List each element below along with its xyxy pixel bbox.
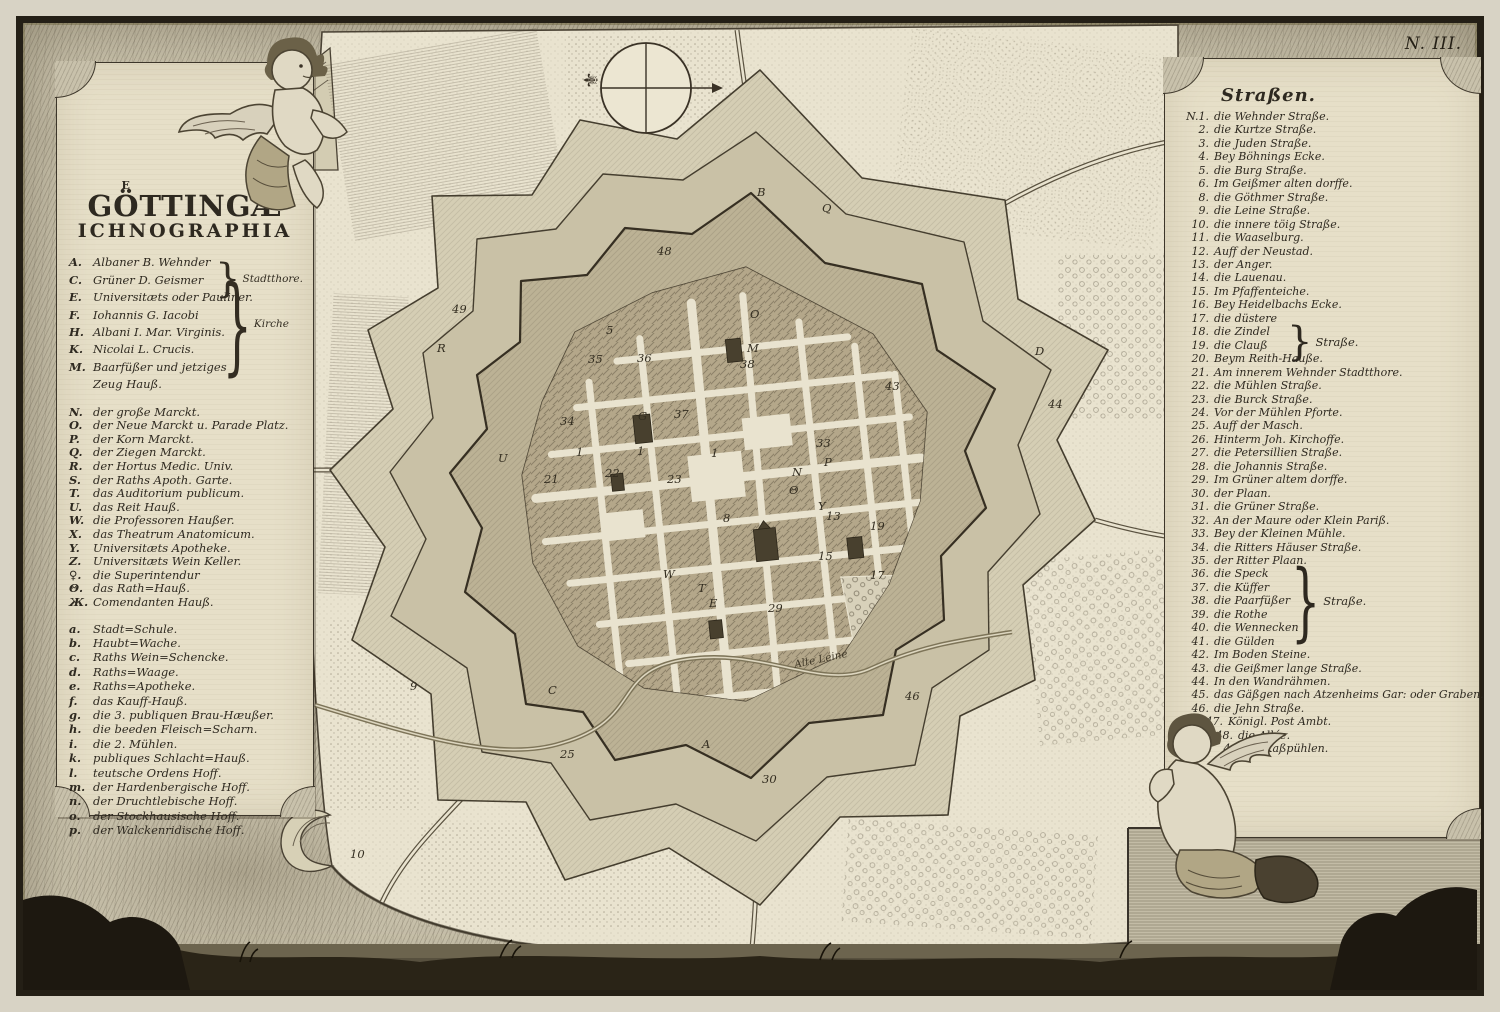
street-row: 8. die Göthmer Straße. xyxy=(1179,191,1479,204)
street-row: 4. Bey Böhnings Ecke. xyxy=(1179,150,1479,163)
street-row: 34. die Ritters Häuser Straße. xyxy=(1179,541,1479,554)
marble-ledge xyxy=(1128,828,1480,944)
street-row: 15. Im Pfaffenteiche. xyxy=(1179,285,1479,298)
street-row: 28. die Johannis Straße. xyxy=(1179,460,1479,473)
street-row: 47. Königl. Post Ambt. xyxy=(1179,715,1479,728)
legend-row: k. publiques Schlacht=Hauß. xyxy=(69,751,313,765)
map-label: R xyxy=(436,341,446,355)
street-row: 49. Im Kaßpühlen. xyxy=(1179,742,1479,755)
street-row: 10. die innere töig Straße. xyxy=(1179,218,1479,231)
street-row: 24. Vor der Mühlen Pforte. xyxy=(1179,406,1479,419)
map-title: E GÖTTINGÆ ICHNOGRAPHIA xyxy=(57,191,313,242)
street-row: 26. Hinterm Joh. Kirchoffe. xyxy=(1179,433,1479,446)
legend-row: W. die Professoren Haußer. xyxy=(69,514,313,528)
street-row: 44. In den Wandrähmen. xyxy=(1179,675,1479,688)
legend-row: P. der Korn Marckt. xyxy=(69,433,313,447)
map-label: 10 xyxy=(350,847,365,861)
fleur-de-lis-icon: ⚜ xyxy=(579,71,603,89)
streets-panel: Straßen. } Straße. } Straße. N.1. die We… xyxy=(1164,58,1480,838)
street-row: 30. der Plaan. xyxy=(1179,487,1479,500)
map-label: 23 xyxy=(666,472,682,486)
map-label: 17 xyxy=(870,568,885,582)
legend-row: Ж. Comendanten Hauß. xyxy=(69,596,313,610)
street-row: 31. die Grüner Straße. xyxy=(1179,500,1479,513)
map-label: 9 xyxy=(410,679,417,693)
legend-row: d. Raths=Waage. xyxy=(69,665,313,679)
map-label: 36 xyxy=(637,351,652,365)
map-label: 13 xyxy=(826,509,841,523)
street-row: 14. die Lauenau. xyxy=(1179,271,1479,284)
street-row: 9. die Leine Straße. xyxy=(1179,204,1479,217)
legend-places: N. der große Marckt. O. der Neue Marckt … xyxy=(69,406,313,610)
kirche-brace: } Kirche xyxy=(223,301,289,347)
street-row: 45. das Gäßgen nach Atzenheims Gar: oder… xyxy=(1179,688,1479,701)
streets-brace-2: } Straße. xyxy=(1291,578,1366,624)
street-row: 32. An der Maure oder Klein Pariß. xyxy=(1179,514,1479,527)
map-label: A xyxy=(701,737,710,751)
legend-row: N. der große Marckt. xyxy=(69,406,313,420)
map-label: O xyxy=(750,307,760,321)
street-row: 29. Im Grüner altem dorffe. xyxy=(1179,473,1479,486)
legend-row: e. Raths=Apotheke. xyxy=(69,679,313,693)
legend-row: X. das Theatrum Anatomicum. xyxy=(69,528,313,542)
parade-square xyxy=(742,413,793,450)
map-label: Θ xyxy=(789,483,799,497)
map-label: 25 xyxy=(559,747,575,761)
street-row: 5. die Burg Straße. xyxy=(1179,164,1479,177)
street-row: 42. Im Boden Steine. xyxy=(1179,648,1479,661)
legend-row: R. der Hortus Medic. Univ. xyxy=(69,460,313,474)
legend-panel: E GÖTTINGÆ ICHNOGRAPHIA A. Albaner B. We… xyxy=(56,62,314,816)
map-label: T xyxy=(698,581,707,595)
streets-brace-1: } Straße. xyxy=(1287,322,1358,362)
map-label: 22 xyxy=(604,466,620,480)
legend-row: m. der Hardenbergische Hoff. xyxy=(69,780,313,794)
legend-row: S. der Raths Apoth. Garte. xyxy=(69,474,313,488)
street-row: 43. die Geißmer lange Straße. xyxy=(1179,662,1479,675)
street-row: 12. Auff der Neustad. xyxy=(1179,245,1479,258)
legend-row: a. Stadt=Schule. xyxy=(69,622,313,636)
korn-markt xyxy=(605,509,646,541)
map-label: 38 xyxy=(740,357,755,371)
legend-row: O. der Neue Marckt u. Parade Platz. xyxy=(69,419,313,433)
legend-row: f. das Kauff-Hauß. xyxy=(69,694,313,708)
engraved-city-plan: ⚜ BQDACRUOMGNPΘYWTE494835363837343354344… xyxy=(0,0,1500,1012)
map-label: B xyxy=(756,185,765,199)
map-label: 19 xyxy=(870,519,885,533)
title-sub: ICHNOGRAPHIA xyxy=(57,222,313,242)
title-superscript: E xyxy=(122,180,131,192)
map-label: 29 xyxy=(767,601,783,615)
legend-row: M. Baarfüßer und jetziges xyxy=(69,359,313,376)
map-label: 1 xyxy=(576,445,583,459)
panel-corner-scallop xyxy=(1163,57,1204,94)
street-row: 41. die Gülden xyxy=(1179,635,1479,648)
map-label: Q xyxy=(822,201,832,215)
streets-list: } Straße. } Straße. N.1. die Wehnder Str… xyxy=(1179,110,1479,756)
map-label: U xyxy=(498,451,508,465)
map-label: E xyxy=(708,596,718,610)
street-row: 6. Im Geißmer alten dorffe. xyxy=(1179,177,1479,190)
street-row: 33. Bey der Kleinen Mühle. xyxy=(1179,527,1479,540)
legend-row: c. Raths Wein=Schencke. xyxy=(69,650,313,664)
legend-row: Q. der Ziegen Marckt. xyxy=(69,446,313,460)
map-label: C xyxy=(548,683,557,697)
street-row: N.1. die Wehnder Straße. xyxy=(1179,110,1479,123)
map-label: 8 xyxy=(723,511,730,525)
legend-row: U. das Reit Hauß. xyxy=(69,501,313,515)
map-label: M xyxy=(746,341,760,355)
legend-row: Y. Universitæts Apotheke. xyxy=(69,542,313,556)
panel-corner-scallop xyxy=(1446,808,1481,839)
street-row: 46. die Jehn Straße. xyxy=(1179,702,1479,715)
map-label: 34 xyxy=(560,414,575,428)
map-label: 1 xyxy=(711,446,718,460)
map-label: 46 xyxy=(904,689,920,703)
map-label: 33 xyxy=(816,436,831,450)
panel-corner-scallop xyxy=(55,61,96,98)
map-label: D xyxy=(1034,344,1044,358)
title-main: E GÖTTINGÆ xyxy=(88,191,283,221)
legend-row: Zeug Hauß. xyxy=(69,376,313,393)
legend-row: h. die beeden Fleisch=Scharn. xyxy=(69,722,313,736)
map-label: W xyxy=(663,567,676,581)
map-label: 30 xyxy=(762,772,777,786)
map-label: 49 xyxy=(451,302,467,316)
legend-row: g. die 3. publiquen Brau-Hæußer. xyxy=(69,708,313,722)
map-label: 5 xyxy=(606,323,613,337)
map-label: 37 xyxy=(674,407,689,421)
map-label: 35 xyxy=(588,352,603,366)
street-row: 13. der Anger. xyxy=(1179,258,1479,271)
street-row: 35. der Ritter Plaan. xyxy=(1179,554,1479,567)
street-row: 22. die Mühlen Straße. xyxy=(1179,379,1479,392)
legend-row: Z. Universitæts Wein Keller. xyxy=(69,555,313,569)
street-row: 11. die Waaselburg. xyxy=(1179,231,1479,244)
map-label: 44 xyxy=(1047,397,1063,411)
legend-row: l. teutsche Ordens Hoff. xyxy=(69,766,313,780)
street-row: 25. Auff der Masch. xyxy=(1179,419,1479,432)
map-label: 1 xyxy=(637,444,644,458)
legend-row: p. der Walckenridische Hoff. xyxy=(69,823,313,837)
streets-header: Straßen. xyxy=(1221,85,1479,106)
map-label: 43 xyxy=(884,379,900,393)
street-row: 23. die Burck Straße. xyxy=(1179,393,1479,406)
legend-buildings: a. Stadt=Schule. b. Haubt=Wache. c. Rath… xyxy=(69,622,313,838)
street-row: 2. die Kurtze Straße. xyxy=(1179,123,1479,136)
legend-row: b. Haubt=Wache. xyxy=(69,636,313,650)
map-label: 21 xyxy=(543,472,559,486)
street-row: 16. Bey Heidelbachs Ecke. xyxy=(1179,298,1479,311)
legend-row: i. die 2. Mühlen. xyxy=(69,737,313,751)
map-label: N xyxy=(791,465,803,479)
map-label: 15 xyxy=(818,549,833,563)
map-label: 48 xyxy=(656,244,672,258)
plate-number: N. III. xyxy=(1405,34,1462,54)
legend-row: n. der Druchtlebische Hoff. xyxy=(69,794,313,808)
map-label: G xyxy=(638,409,647,423)
map-label: P xyxy=(823,455,832,469)
legend-row: Θ. das Rath=Hauß. xyxy=(69,582,313,596)
street-row: 21. Am innerem Wehnder Stadtthore. xyxy=(1179,366,1479,379)
street-row: 27. die Petersillien Straße. xyxy=(1179,446,1479,459)
legend-row: ♀. die Superintendur xyxy=(69,569,313,583)
legend-row: o. der Stockhausische Hoff. xyxy=(69,809,313,823)
street-row: 3. die Juden Straße. xyxy=(1179,137,1479,150)
street-row: 48. die Allée. xyxy=(1179,729,1479,742)
legend-row: T. das Auditorium publicum. xyxy=(69,487,313,501)
